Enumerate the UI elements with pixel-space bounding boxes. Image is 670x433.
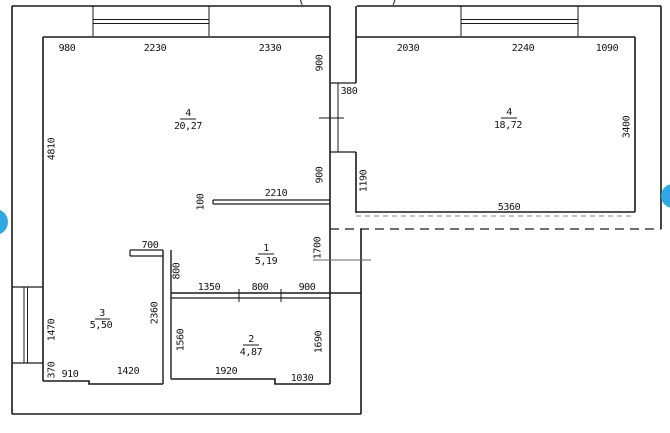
dim-900-top: 900 (315, 54, 326, 71)
dim-370: 370 (47, 361, 58, 378)
dimension-labels: 980 2230 2330 2030 2240 1090 380 2210 53… (47, 43, 633, 384)
dim-3400: 3400 (622, 115, 633, 138)
window-left-side (12, 287, 43, 363)
floorplan-drawing: ( ) (0, 0, 670, 433)
dim-800-v: 800 (172, 262, 183, 279)
dim-100: 100 (196, 193, 207, 210)
dim-1350: 1350 (198, 282, 221, 293)
dim-900-mid: 900 (315, 166, 326, 183)
dim-2230: 2230 (144, 43, 167, 54)
dim-1560: 1560 (176, 328, 187, 351)
room-number: 4 (506, 107, 512, 118)
dim-4810: 4810 (47, 137, 58, 160)
dim-800-h: 800 (252, 282, 269, 293)
room-number: 2 (248, 334, 254, 345)
dim-1420: 1420 (117, 366, 140, 377)
dim-2360: 2360 (150, 301, 161, 324)
dim-5360: 5360 (498, 202, 521, 213)
dim-1470: 1470 (47, 318, 58, 341)
window-top-left (93, 6, 209, 36)
dim-900-h: 900 (299, 282, 316, 293)
dim-980: 980 (59, 43, 76, 54)
room-3-walls (43, 381, 163, 384)
room-area: 20,27 (174, 121, 202, 132)
window-top-right (461, 6, 578, 36)
dim-1090: 1090 (596, 43, 619, 54)
partition-wall (213, 200, 330, 204)
dim-1030: 1030 (291, 373, 314, 384)
dim-2210: 2210 (265, 188, 288, 199)
interior-right-wall (313, 204, 371, 384)
dim-1690: 1690 (314, 330, 325, 353)
gallery-prev-button[interactable] (0, 209, 8, 235)
dim-910: 910 (62, 369, 79, 380)
room-area: 5,50 (90, 320, 113, 331)
gallery-next-button[interactable] (661, 184, 670, 208)
floorplan-viewer: ( ) (0, 0, 670, 433)
dim-2330: 2330 (259, 43, 282, 54)
dim-2240: 2240 (512, 43, 535, 54)
room-area: 5,19 (255, 256, 278, 267)
dim-2030: 2030 (397, 43, 420, 54)
room-number: 3 (99, 308, 105, 319)
dim-1700: 1700 (313, 236, 324, 259)
room-area: 4,87 (240, 347, 263, 358)
outer-walls (12, 6, 661, 414)
room-number: 1 (263, 243, 269, 254)
dim-1920: 1920 (215, 366, 238, 377)
room-number: 4 (185, 108, 191, 119)
dim-380: 380 (341, 86, 358, 97)
room-area: 18,72 (494, 120, 522, 131)
dim-1190: 1190 (359, 169, 370, 192)
dim-700: 700 (142, 240, 159, 251)
